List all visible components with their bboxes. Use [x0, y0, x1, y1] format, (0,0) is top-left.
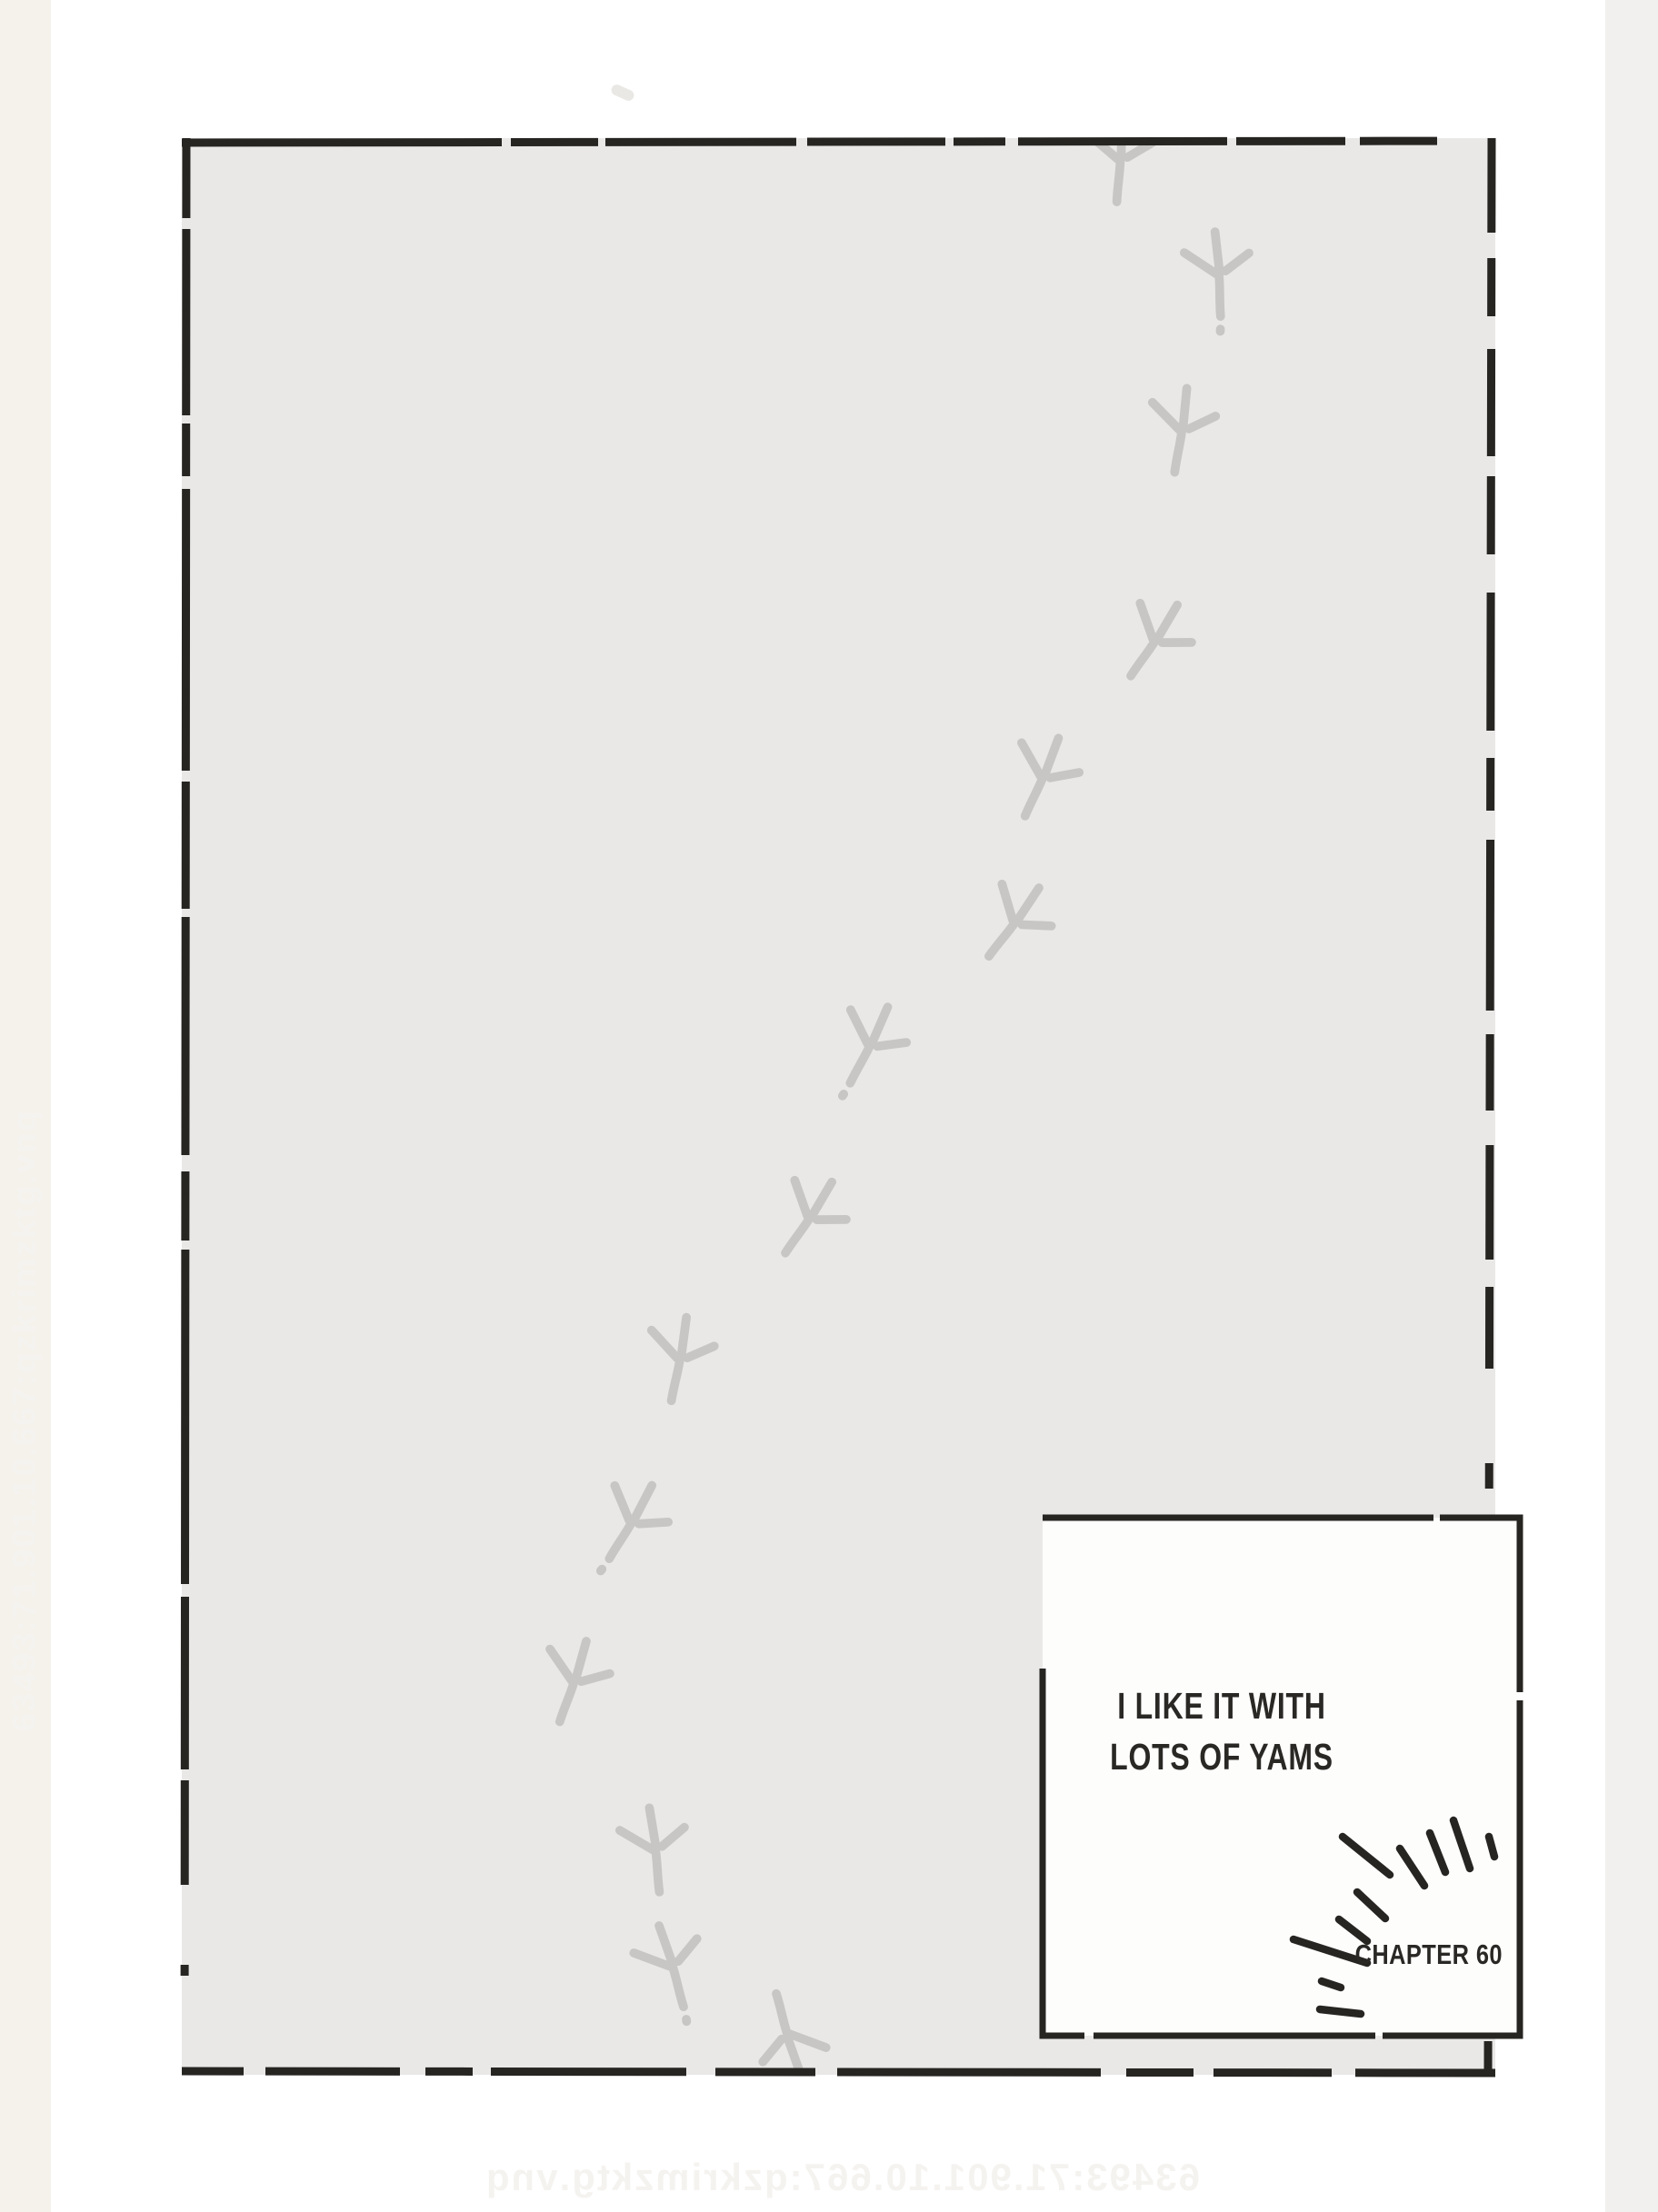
manga-panel: [182, 138, 1495, 2075]
chapter-number-label: CHAPTER 60: [1355, 1939, 1503, 1970]
bird-footprint: [839, 1002, 912, 1104]
left-page-edge-strip: [0, 0, 51, 2212]
watermark-left: 63493:71.901.10.667:qzkrimzktg.vnq: [5, 1110, 44, 1731]
watermark-bottom: 63493:71.901.10.667:qzkrimzktg.vnq: [509, 2156, 1200, 2199]
bird-footprint: [550, 1641, 610, 1722]
chapter-title-line2: LOTS OF YAMS: [1094, 1731, 1350, 1782]
bird-footprint: [1151, 384, 1224, 474]
bird-footprint: [980, 877, 1062, 972]
bird-footprint: [1086, 138, 1165, 204]
bird-footprint: [776, 1172, 855, 1266]
bird-footprint: [735, 1988, 831, 2075]
bird-footprint: [597, 1478, 675, 1582]
scan-speck: [610, 83, 636, 103]
right-page-edge-strip: [1605, 0, 1658, 2212]
bird-footprint: [651, 1314, 722, 1402]
chapter-title-line1: I LIKE IT WITH: [1094, 1680, 1350, 1731]
manga-page: { "page": { "bg": "#ffffff", "left_strip…: [0, 0, 1658, 2212]
bird-footprint: [1015, 735, 1082, 821]
bird-footprint: [1122, 595, 1201, 689]
bird-footprint: [616, 1798, 704, 1896]
bird-footprint: [629, 1912, 732, 2024]
bird-footprints-trail: [182, 138, 1495, 2075]
chapter-title: I LIKE IT WITH LOTS OF YAMS: [1058, 1680, 1385, 1782]
bird-footprint: [1182, 223, 1273, 333]
